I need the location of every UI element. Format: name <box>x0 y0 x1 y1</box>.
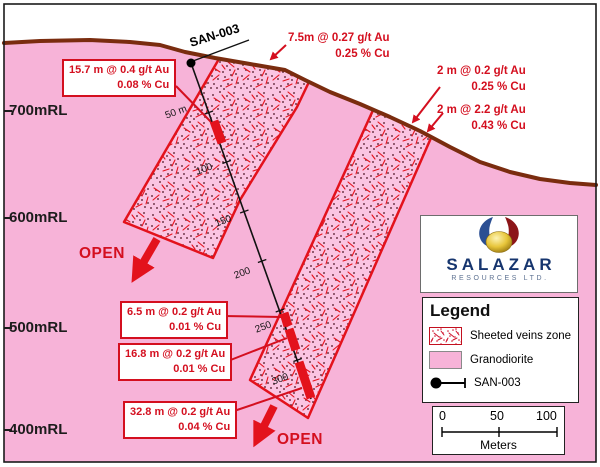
drill-collar-dot <box>187 59 196 68</box>
cross-section-canvas <box>0 0 600 467</box>
cross-section-figure: 700mRL 600mRL 500mRL 400mRL SAN-003 50 m… <box>0 0 600 467</box>
